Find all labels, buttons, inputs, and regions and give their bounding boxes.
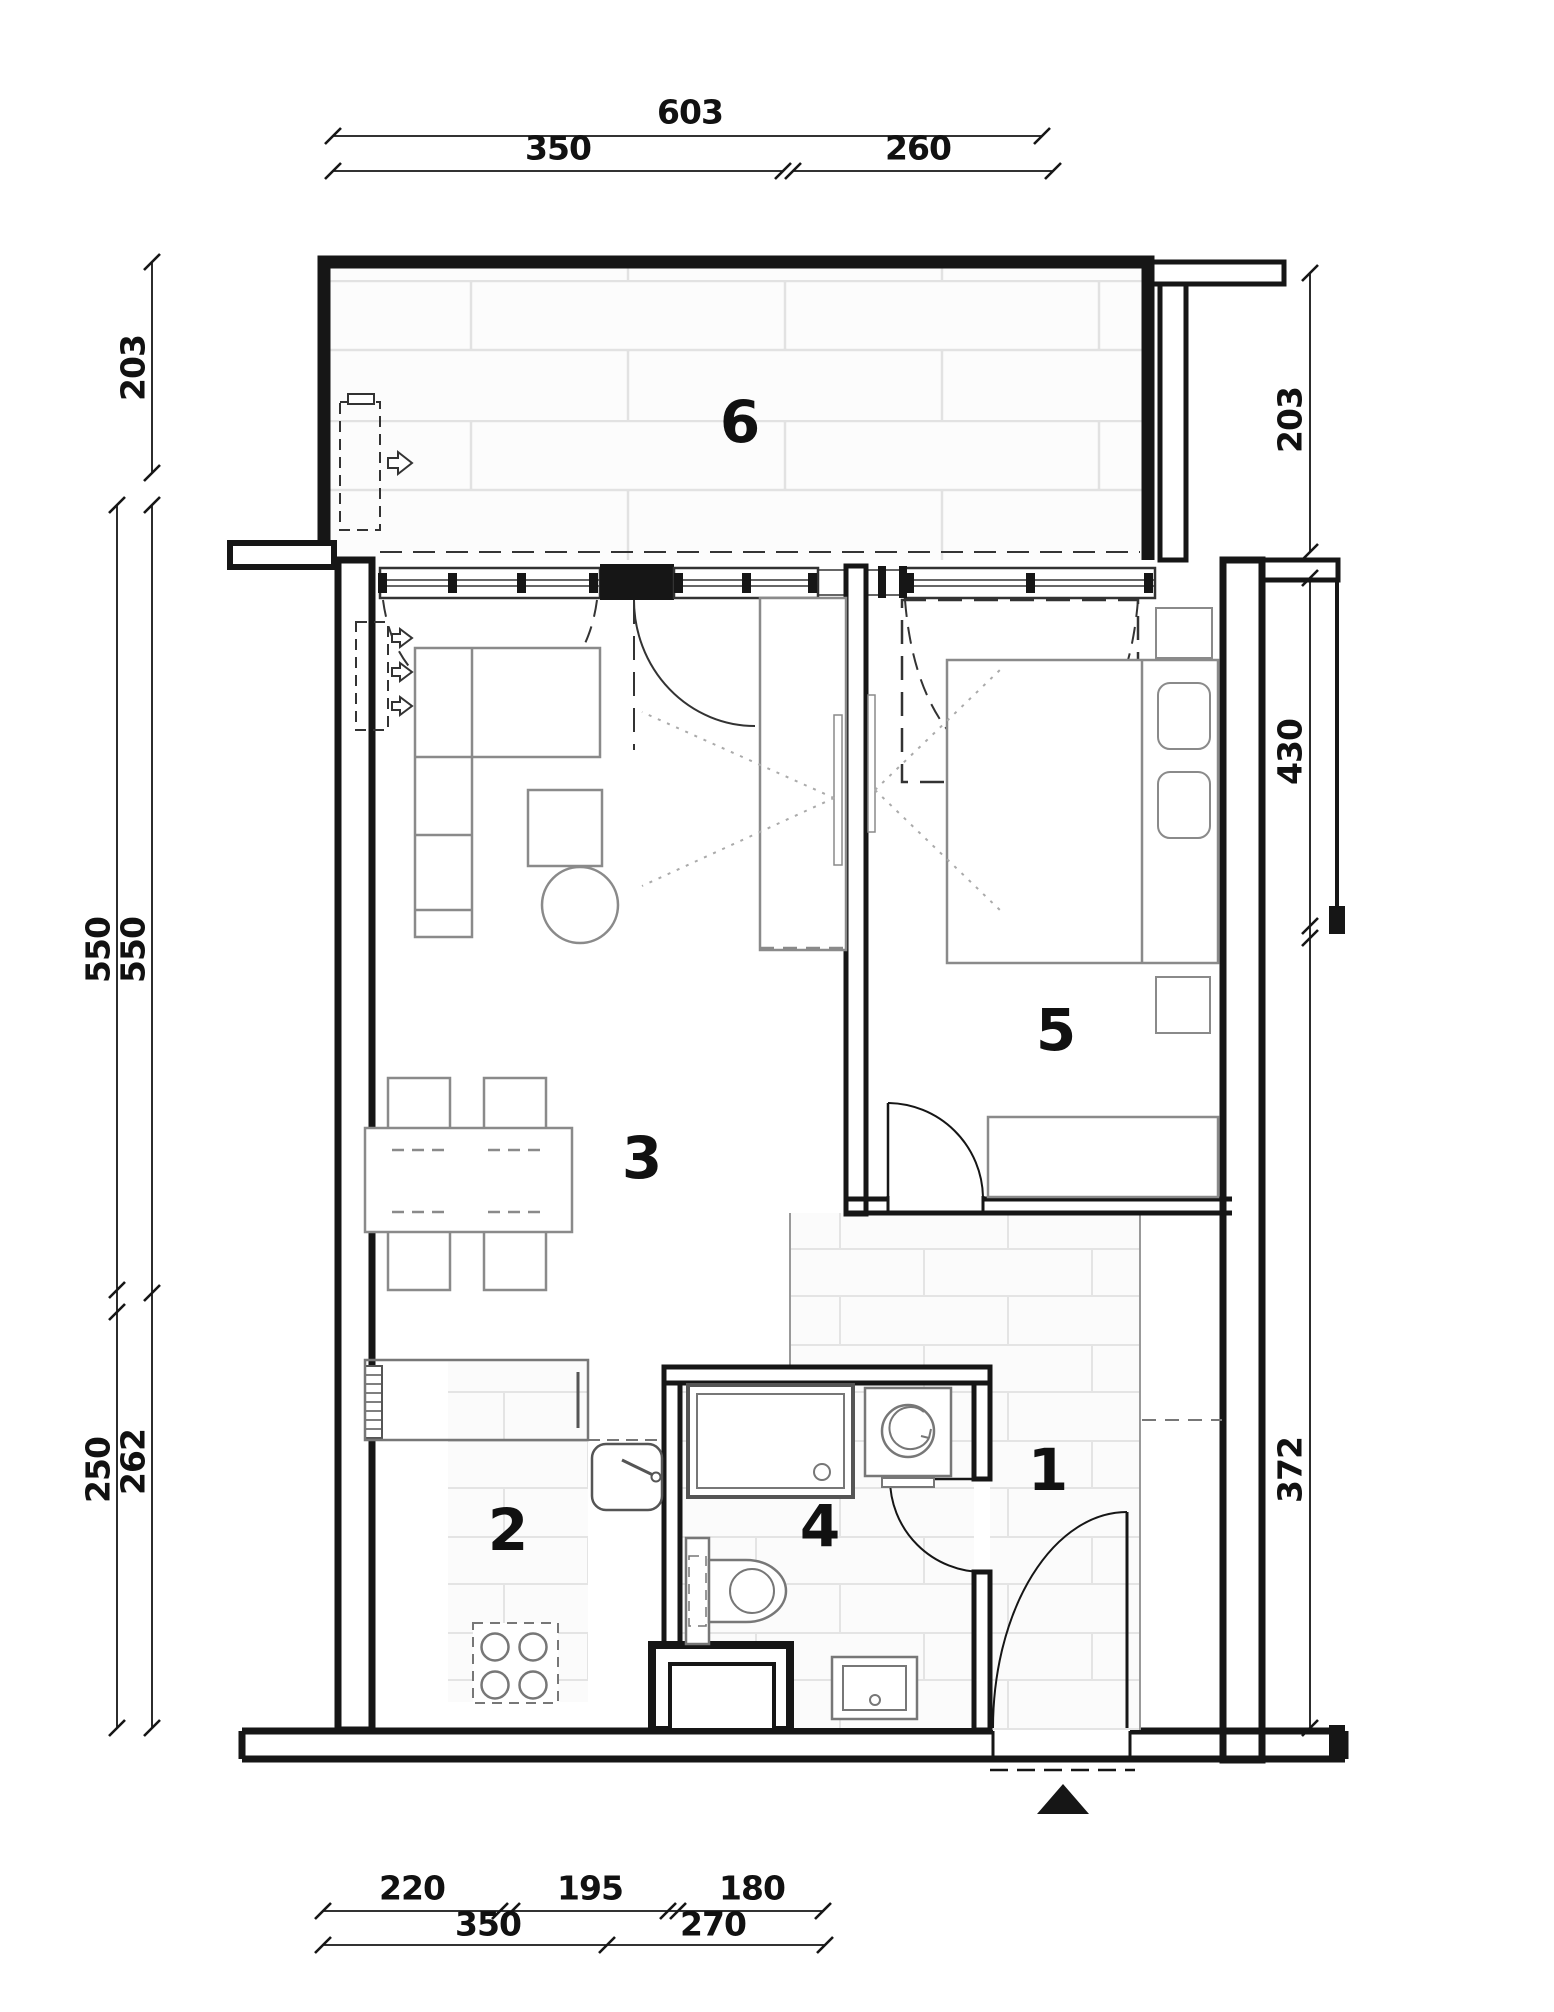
bedroom-south-wall xyxy=(846,1199,1232,1213)
armchair xyxy=(528,790,602,866)
room-label-2: 2 xyxy=(488,1496,528,1564)
entrance-arrow-icon xyxy=(1037,1784,1089,1814)
dim-left-550b: 550 xyxy=(114,917,153,983)
vent-arrow-icons xyxy=(392,629,412,715)
south-wall xyxy=(242,1731,1345,1759)
floor-plan-canvas: 6 3 5 2 4 1 603 350 260 220 195 180 350 … xyxy=(0,0,1554,2012)
balcony-door-swing xyxy=(634,600,755,726)
dim-bottom-270: 270 xyxy=(680,1905,746,1944)
dim-top-260: 260 xyxy=(885,129,951,168)
dim-bottom-195: 195 xyxy=(557,1869,623,1908)
dim-top-350: 350 xyxy=(525,129,591,168)
room-label-5: 5 xyxy=(1036,996,1076,1064)
window-living xyxy=(380,568,600,598)
dim-left-203: 203 xyxy=(114,335,153,401)
dining-table xyxy=(365,1128,572,1232)
nightstand xyxy=(1156,977,1210,1033)
neighbor-wall-stub-left xyxy=(230,543,334,567)
dim-right-372: 372 xyxy=(1271,1437,1310,1503)
room-label-6: 6 xyxy=(720,388,760,456)
dining-chair xyxy=(484,1228,546,1290)
dim-left-262: 262 xyxy=(114,1429,153,1495)
bathroom-east-wall-upper xyxy=(974,1383,990,1479)
window-pier xyxy=(600,564,674,600)
dim-left-550a: 550 xyxy=(79,917,118,983)
east-wall xyxy=(1223,560,1262,1760)
room-label-4: 4 xyxy=(800,1492,840,1560)
bedroom-mirror xyxy=(868,695,875,832)
bedroom-door-swing xyxy=(888,1103,983,1197)
top-right-wall-horizontal xyxy=(1152,262,1284,284)
living-wardrobe xyxy=(760,598,846,950)
pillow xyxy=(1158,683,1210,749)
coffee-table xyxy=(542,867,618,943)
room-label-1: 1 xyxy=(1028,1436,1068,1504)
dim-right-203: 203 xyxy=(1271,387,1310,453)
dim-top-total: 603 xyxy=(657,93,723,132)
dim-bottom-180: 180 xyxy=(719,1869,785,1908)
dim-bottom-350: 350 xyxy=(455,1905,521,1944)
room-label-3: 3 xyxy=(622,1124,662,1192)
bathroom-west-wall xyxy=(664,1383,680,1645)
nightstand xyxy=(1156,608,1212,658)
shower-tray xyxy=(688,1385,853,1497)
bedroom-bench xyxy=(988,1117,1218,1197)
living-bedroom-wall xyxy=(846,566,866,1214)
living-furniture xyxy=(365,598,846,1290)
dining-chair xyxy=(388,1228,450,1290)
floor-plan-drawing xyxy=(0,0,1554,2012)
top-right-wall-vertical xyxy=(1160,284,1186,560)
right-wall-connector xyxy=(1258,560,1338,580)
dim-bottom-220: 220 xyxy=(379,1869,445,1908)
pillow xyxy=(1158,772,1210,838)
bathroom-east-wall-lower xyxy=(974,1572,990,1730)
dim-right-430: 430 xyxy=(1271,719,1310,785)
shower-drain xyxy=(814,1464,830,1480)
wardrobe-mirror xyxy=(834,715,842,865)
washing-machine xyxy=(865,1388,951,1476)
dim-left-250: 250 xyxy=(79,1437,118,1503)
bathroom-north-wall xyxy=(664,1367,990,1383)
